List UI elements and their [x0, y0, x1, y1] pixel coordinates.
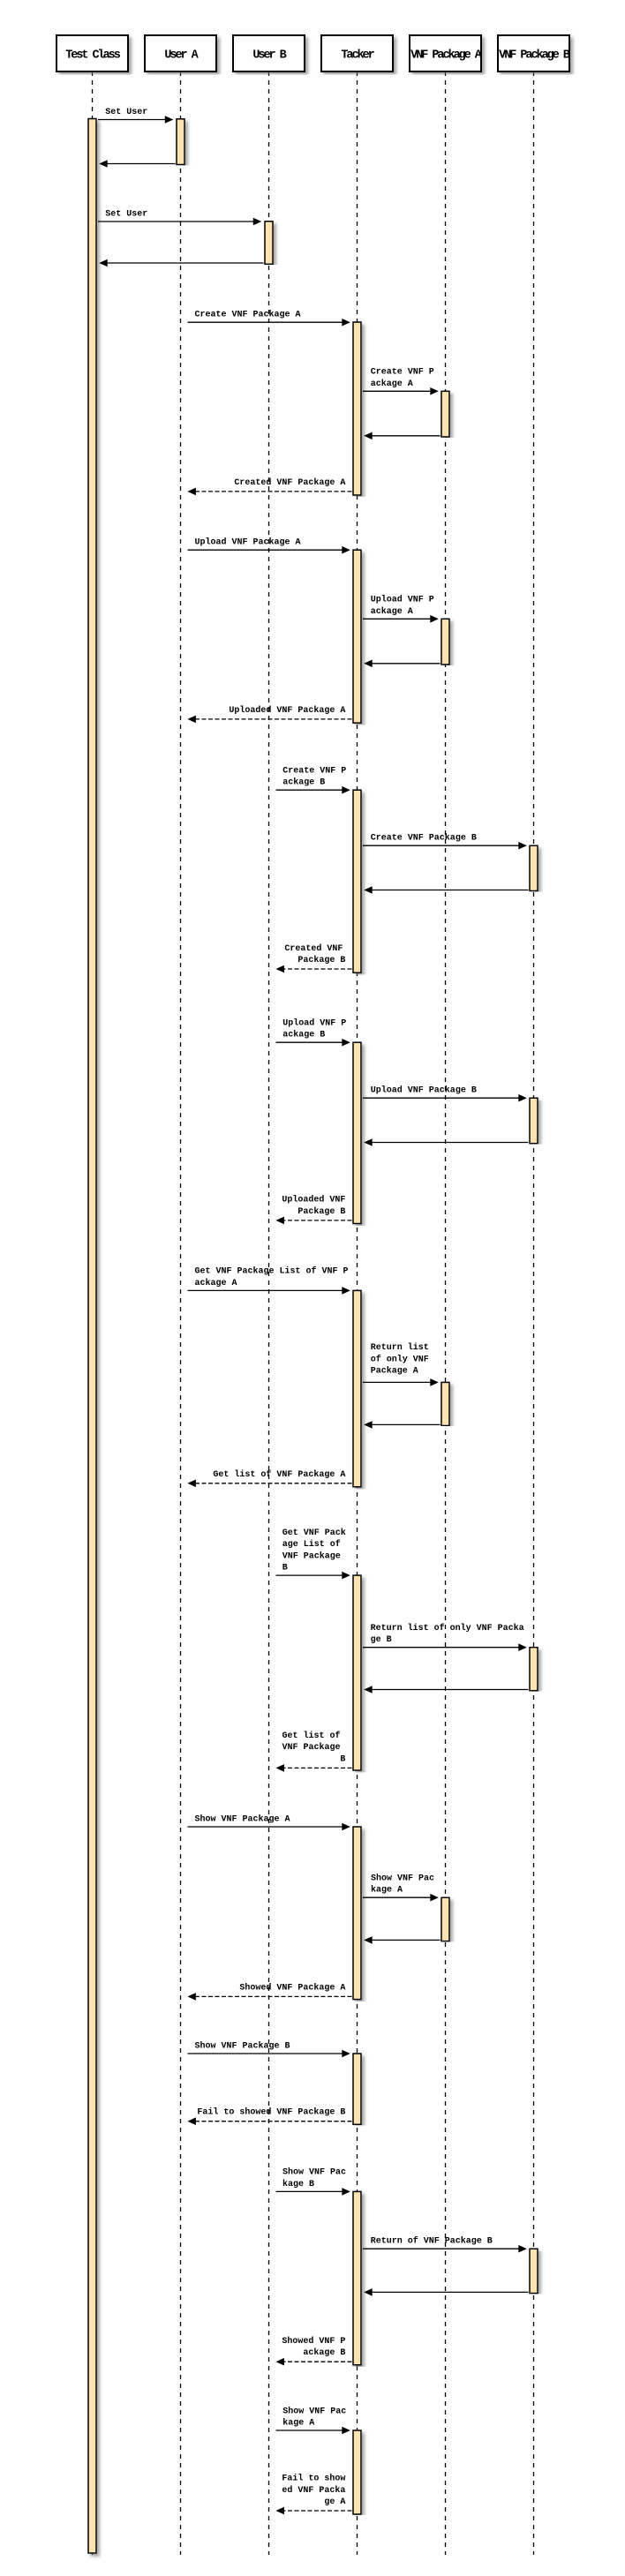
svg-text:Test Class: Test Class [65, 49, 120, 62]
svg-text:of only VNF: of only VNF [371, 1354, 429, 1364]
svg-text:Package A: Package A [371, 1366, 418, 1377]
svg-text:Return list: Return list [371, 1342, 429, 1353]
svg-text:Upload VNF P: Upload VNF P [371, 595, 434, 605]
svg-text:Create VNF Package A: Create VNF Package A [195, 310, 301, 320]
svg-text:Show VNF Pac: Show VNF Pac [371, 1874, 434, 1884]
svg-text:Package B: Package B [297, 1206, 345, 1217]
svg-text:Showed VNF P: Showed VNF P [282, 2336, 345, 2347]
svg-text:VNF Package: VNF Package [282, 1551, 341, 1561]
svg-text:Upload VNF P: Upload VNF P [282, 1018, 346, 1029]
svg-text:Created VNF Package A: Created VNF Package A [234, 477, 345, 488]
svg-text:Get list of VNF Package A: Get list of VNF Package A [213, 1469, 345, 1480]
svg-text:ackage B: ackage B [282, 777, 325, 788]
svg-text:ed VNF Packa: ed VNF Packa [282, 2485, 345, 2496]
svg-text:Get list of: Get list of [282, 1731, 340, 1741]
svg-text:VNF Package: VNF Package [282, 1742, 340, 1753]
svg-text:ge B: ge B [371, 1635, 392, 1645]
svg-text:kage A: kage A [371, 1885, 403, 1896]
svg-text:Show VNF Pac: Show VNF Pac [282, 2406, 346, 2416]
svg-text:ackage A: ackage A [371, 606, 413, 617]
svg-text:Upload VNF Package A: Upload VNF Package A [195, 537, 301, 548]
svg-text:Show VNF Package B: Show VNF Package B [195, 2041, 290, 2052]
svg-text:Get VNF Package List of VNF P: Get VNF Package List of VNF P [195, 1266, 349, 1277]
svg-text:VNF Package A: VNF Package A [410, 49, 483, 62]
svg-text:ackage B: ackage B [303, 2347, 345, 2358]
svg-text:Created VNF: Created VNF [284, 943, 343, 954]
svg-text:kage B: kage B [282, 2179, 314, 2189]
svg-text:ackage A: ackage A [195, 1278, 237, 1288]
svg-text:Uploaded VNF: Uploaded VNF [282, 1195, 345, 1205]
svg-text:B: B [340, 1754, 345, 1764]
svg-text:User A: User A [164, 49, 199, 62]
svg-text:Fail to showed VNF Package B: Fail to showed VNF Package B [197, 2107, 345, 2118]
svg-text:User B: User B [252, 49, 286, 62]
svg-text:age List of: age List of [282, 1539, 341, 1550]
svg-text:Set User: Set User [105, 108, 147, 117]
svg-text:ackage A: ackage A [371, 379, 413, 389]
svg-text:Get VNF Pack: Get VNF Pack [282, 1528, 346, 1538]
svg-text:kage A: kage A [282, 2418, 314, 2429]
svg-text:Show VNF Pac: Show VNF Pac [282, 2167, 346, 2178]
svg-text:Return of VNF Package B: Return of VNF Package B [371, 2236, 493, 2247]
svg-text:Uploaded VNF Package A: Uploaded VNF Package A [229, 705, 345, 716]
svg-text:VNF Package B: VNF Package B [499, 49, 570, 62]
svg-text:Upload VNF Package B: Upload VNF Package B [371, 1085, 477, 1096]
svg-text:Showed VNF Package A: Showed VNF Package A [239, 1982, 345, 1993]
svg-text:Tacker: Tacker [341, 49, 374, 62]
svg-text:Package B: Package B [297, 955, 345, 965]
svg-text:Create VNF P: Create VNF P [282, 767, 346, 777]
svg-text:Create VNF P: Create VNF P [371, 368, 434, 378]
svg-text:Return list of only VNF Packa: Return list of only VNF Packa [371, 1623, 524, 1633]
svg-text:ackage B: ackage B [282, 1030, 325, 1040]
svg-text:Create VNF Package B: Create VNF Package B [371, 833, 477, 844]
svg-text:Fail to show: Fail to show [282, 2474, 345, 2484]
svg-text:B: B [282, 1564, 288, 1573]
svg-text:ge A: ge A [324, 2497, 345, 2507]
svg-text:Show VNF Package A: Show VNF Package A [195, 1814, 290, 1825]
svg-text:Set User: Set User [105, 210, 147, 220]
